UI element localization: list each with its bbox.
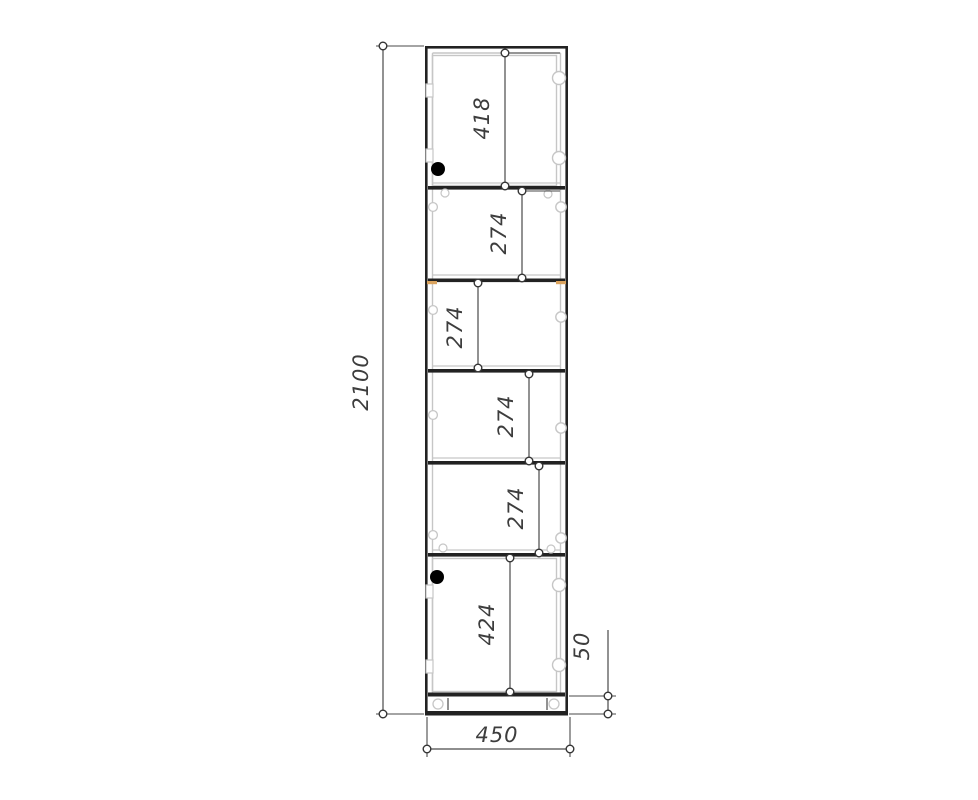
- plinth-base: [425, 711, 568, 716]
- dimension-label-shelf-gap-1: 274: [487, 211, 511, 254]
- shelf-3: [428, 369, 565, 373]
- shelf-pin-icon: [429, 531, 438, 540]
- dimension-endpoint-circle: [525, 457, 533, 465]
- shelf-5: [428, 553, 565, 557]
- bottom-panel: [428, 693, 565, 697]
- shelf-pin-icon: [429, 306, 438, 315]
- dimension-endpoint-circle: [501, 182, 509, 190]
- cam-lock-icon: [553, 152, 566, 165]
- wood-edge-mark: [556, 281, 566, 284]
- dimension-label-top-door-height: 418: [470, 96, 494, 139]
- door-lock-icon: [431, 162, 445, 176]
- cam-lock-icon: [556, 312, 566, 322]
- dimension-plinth-height: 50: [569, 630, 616, 718]
- dimension-overall-height: 2100: [349, 42, 424, 718]
- drawing-page: 210041827427427427442450450: [0, 0, 978, 800]
- dimension-endpoint-circle: [518, 274, 526, 282]
- shelf-pin-icon: [441, 189, 449, 197]
- shelf-pin-icon: [439, 544, 447, 552]
- dimension-endpoint-circle: [566, 745, 574, 753]
- dimension-label-shelf-gap-3: 274: [494, 394, 518, 437]
- dimension-endpoint-circle: [474, 279, 482, 287]
- shelf-2: [428, 279, 565, 283]
- dimension-label-shelf-gap-2: 274: [443, 305, 467, 348]
- dimension-label-overall-width: 450: [475, 723, 518, 747]
- dimension-endpoint-circle: [535, 462, 543, 470]
- cam-lock-icon: [556, 423, 566, 433]
- plinth-bracket-icon: [549, 699, 559, 709]
- wood-edge-mark: [427, 281, 437, 284]
- dimension-endpoint-circle: [506, 554, 514, 562]
- dimension-endpoint-circle: [518, 187, 526, 195]
- hinge-plate-icon: [426, 660, 433, 673]
- dimension-label-plinth-height: 50: [570, 632, 594, 661]
- hinge-plate-icon: [426, 585, 433, 598]
- shelf-1: [428, 186, 565, 190]
- technical-drawing-canvas: 210041827427427427442450450: [0, 0, 978, 800]
- dimension-endpoint-circle: [604, 692, 612, 700]
- shelf-pin-icon: [429, 411, 438, 420]
- hinge-plate-icon: [426, 149, 433, 162]
- cam-lock-icon: [553, 659, 566, 672]
- cam-lock-icon: [556, 533, 566, 543]
- cam-lock-icon: [553, 579, 566, 592]
- dimension-endpoint-circle: [525, 370, 533, 378]
- dimension-label-bottom-door-height: 424: [475, 602, 499, 645]
- dimension-endpoint-circle: [501, 49, 509, 57]
- shelf-4: [428, 461, 565, 465]
- plinth-bracket-icon: [433, 699, 443, 709]
- shelf-pin-icon: [547, 545, 555, 553]
- dimension-endpoint-circle: [506, 688, 514, 696]
- cam-lock-icon: [556, 202, 566, 212]
- shelf-pin-icon: [429, 203, 438, 212]
- hinge-plate-icon: [426, 84, 433, 97]
- dimension-endpoint-circle: [379, 710, 387, 718]
- dimension-label-shelf-gap-4: 274: [504, 486, 528, 529]
- dimension-endpoint-circle: [535, 549, 543, 557]
- dimension-endpoint-circle: [474, 364, 482, 372]
- cam-lock-icon: [553, 72, 566, 85]
- dimension-endpoint-circle: [379, 42, 387, 50]
- dimension-endpoint-circle: [604, 710, 612, 718]
- dimension-overall-width: 450: [423, 717, 574, 757]
- dimension-label-overall-height: 2100: [349, 353, 373, 410]
- dimension-endpoint-circle: [423, 745, 431, 753]
- door-lock-icon: [430, 570, 444, 584]
